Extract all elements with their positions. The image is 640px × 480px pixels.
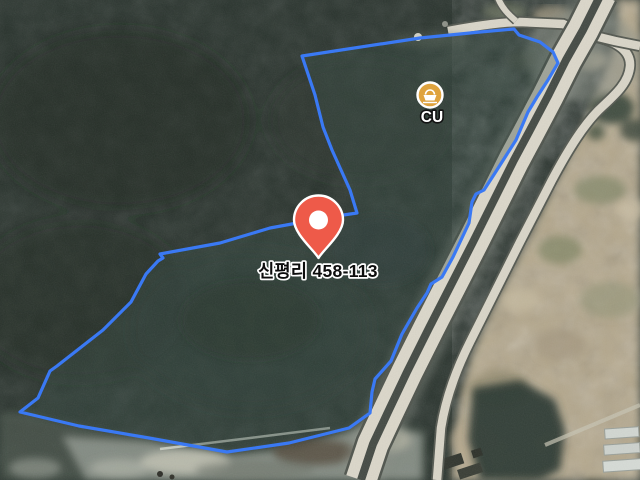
poi-marker-cu[interactable]: CU (418, 83, 444, 127)
parcel-label: 신평리 458-113 (258, 261, 378, 281)
pin-center-dot (309, 211, 328, 230)
poi-label: CU (421, 109, 443, 126)
map-canvas[interactable]: CU 신평리 458-113 (0, 0, 640, 480)
satellite-map: CU 신평리 458-113 (0, 0, 640, 480)
